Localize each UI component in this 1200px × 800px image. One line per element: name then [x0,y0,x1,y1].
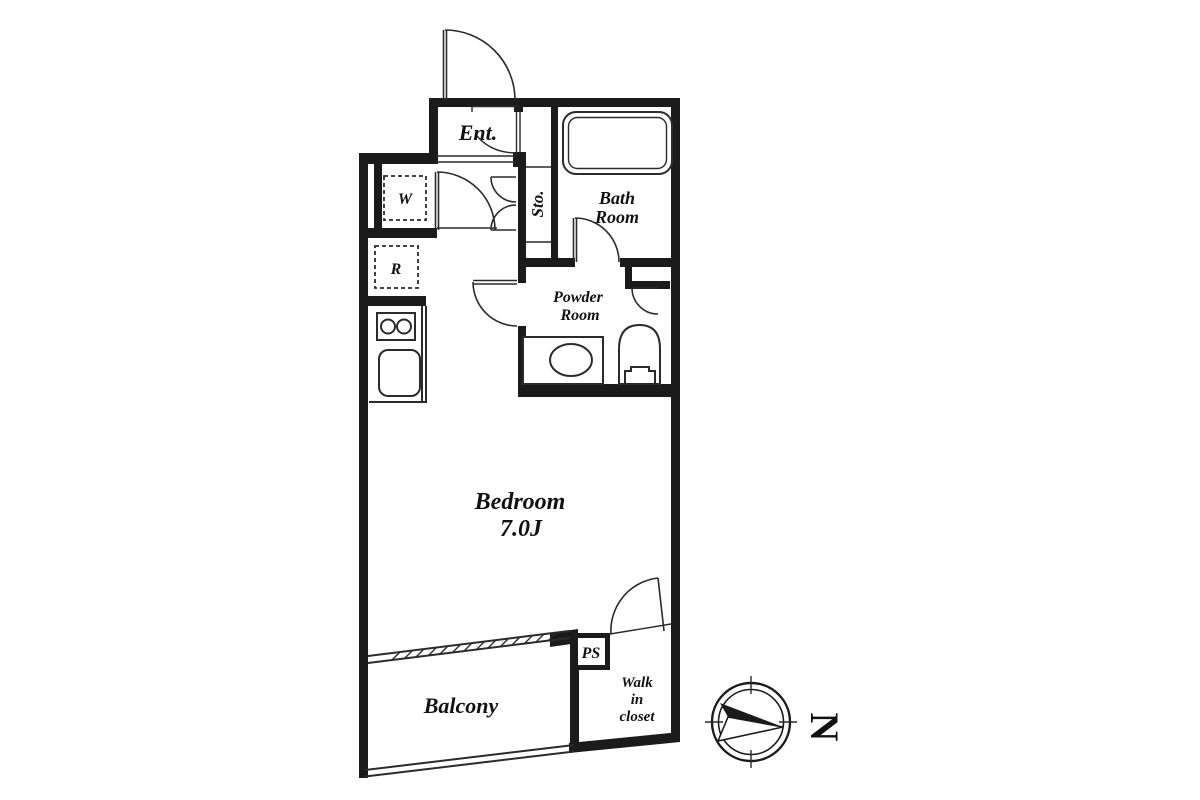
compass: N [705,676,847,768]
entrance-label: Ent. [458,120,498,145]
wall-powder-bottom [518,384,680,397]
wall-top-left-section [359,153,437,164]
powder-door-arc [473,282,517,326]
storage-door-upper [491,177,516,202]
wall-bottom-slanted [569,732,680,753]
wall-entrance-left [429,98,438,164]
entrance-door-leaf [444,30,447,100]
walkin-label-line3: closet [620,709,656,725]
wall-washer-niche [374,164,382,232]
powder-room-label-line2: Room [559,307,599,324]
wall-below-washer [359,228,437,238]
walkin-door-arc [611,578,658,634]
balcony-label: Balcony [423,693,499,718]
floor-plan-page: Ent. Sto. Bath Room Powder Room Bedroom … [0,0,1200,800]
compass-needle-white [718,717,783,741]
powder-door-leaf [473,281,517,285]
powder-cabinet-door-arc [632,288,658,314]
wall-bath-bottom-right [620,258,680,267]
bath-door-leaf [574,218,577,262]
wall-block-storage-top [513,152,526,167]
washer-label: W [398,191,414,208]
walkin-label-line2: in [631,692,644,708]
storage-label: Sto. [528,191,547,218]
north-label: N [802,713,847,742]
refrigerator-label: R [390,261,402,278]
entrance-step-edge [436,156,516,162]
bedroom-label: Bedroom [474,489,566,515]
washbasin-bowl [550,344,592,376]
bath-room-label-line2: Room [594,207,639,227]
wall-left-outer [359,153,368,778]
wall-bath-bottom-left [518,258,575,267]
hall-door-leaf [436,172,439,230]
walkin-top-line [610,624,671,634]
entrance-right-partition [517,112,521,152]
floor-plan-svg: Ent. Sto. Bath Room Powder Room Bedroom … [0,0,1200,800]
bedroom-size-label: 7.0J [500,516,543,542]
walkin-door-leaf [658,578,664,631]
powder-room-label-line1: Powder [552,289,604,306]
balcony-railing [365,745,574,777]
wall-right-outer [671,98,680,735]
entrance-shoe-cabinet-line [472,107,517,113]
bath-room-label-line1: Bath [598,188,635,208]
walkin-label-line1: Walk [621,675,653,691]
hall-door-arc [437,172,495,230]
kitchen-sink [379,350,420,396]
balcony-window-hatch [392,633,556,660]
entrance-door-arc [445,30,515,100]
pipe-shaft-label: PS [581,645,601,662]
wall-bath-left [551,104,558,267]
wall-kitchen-counter-top [368,296,426,306]
bathtub [563,112,672,174]
